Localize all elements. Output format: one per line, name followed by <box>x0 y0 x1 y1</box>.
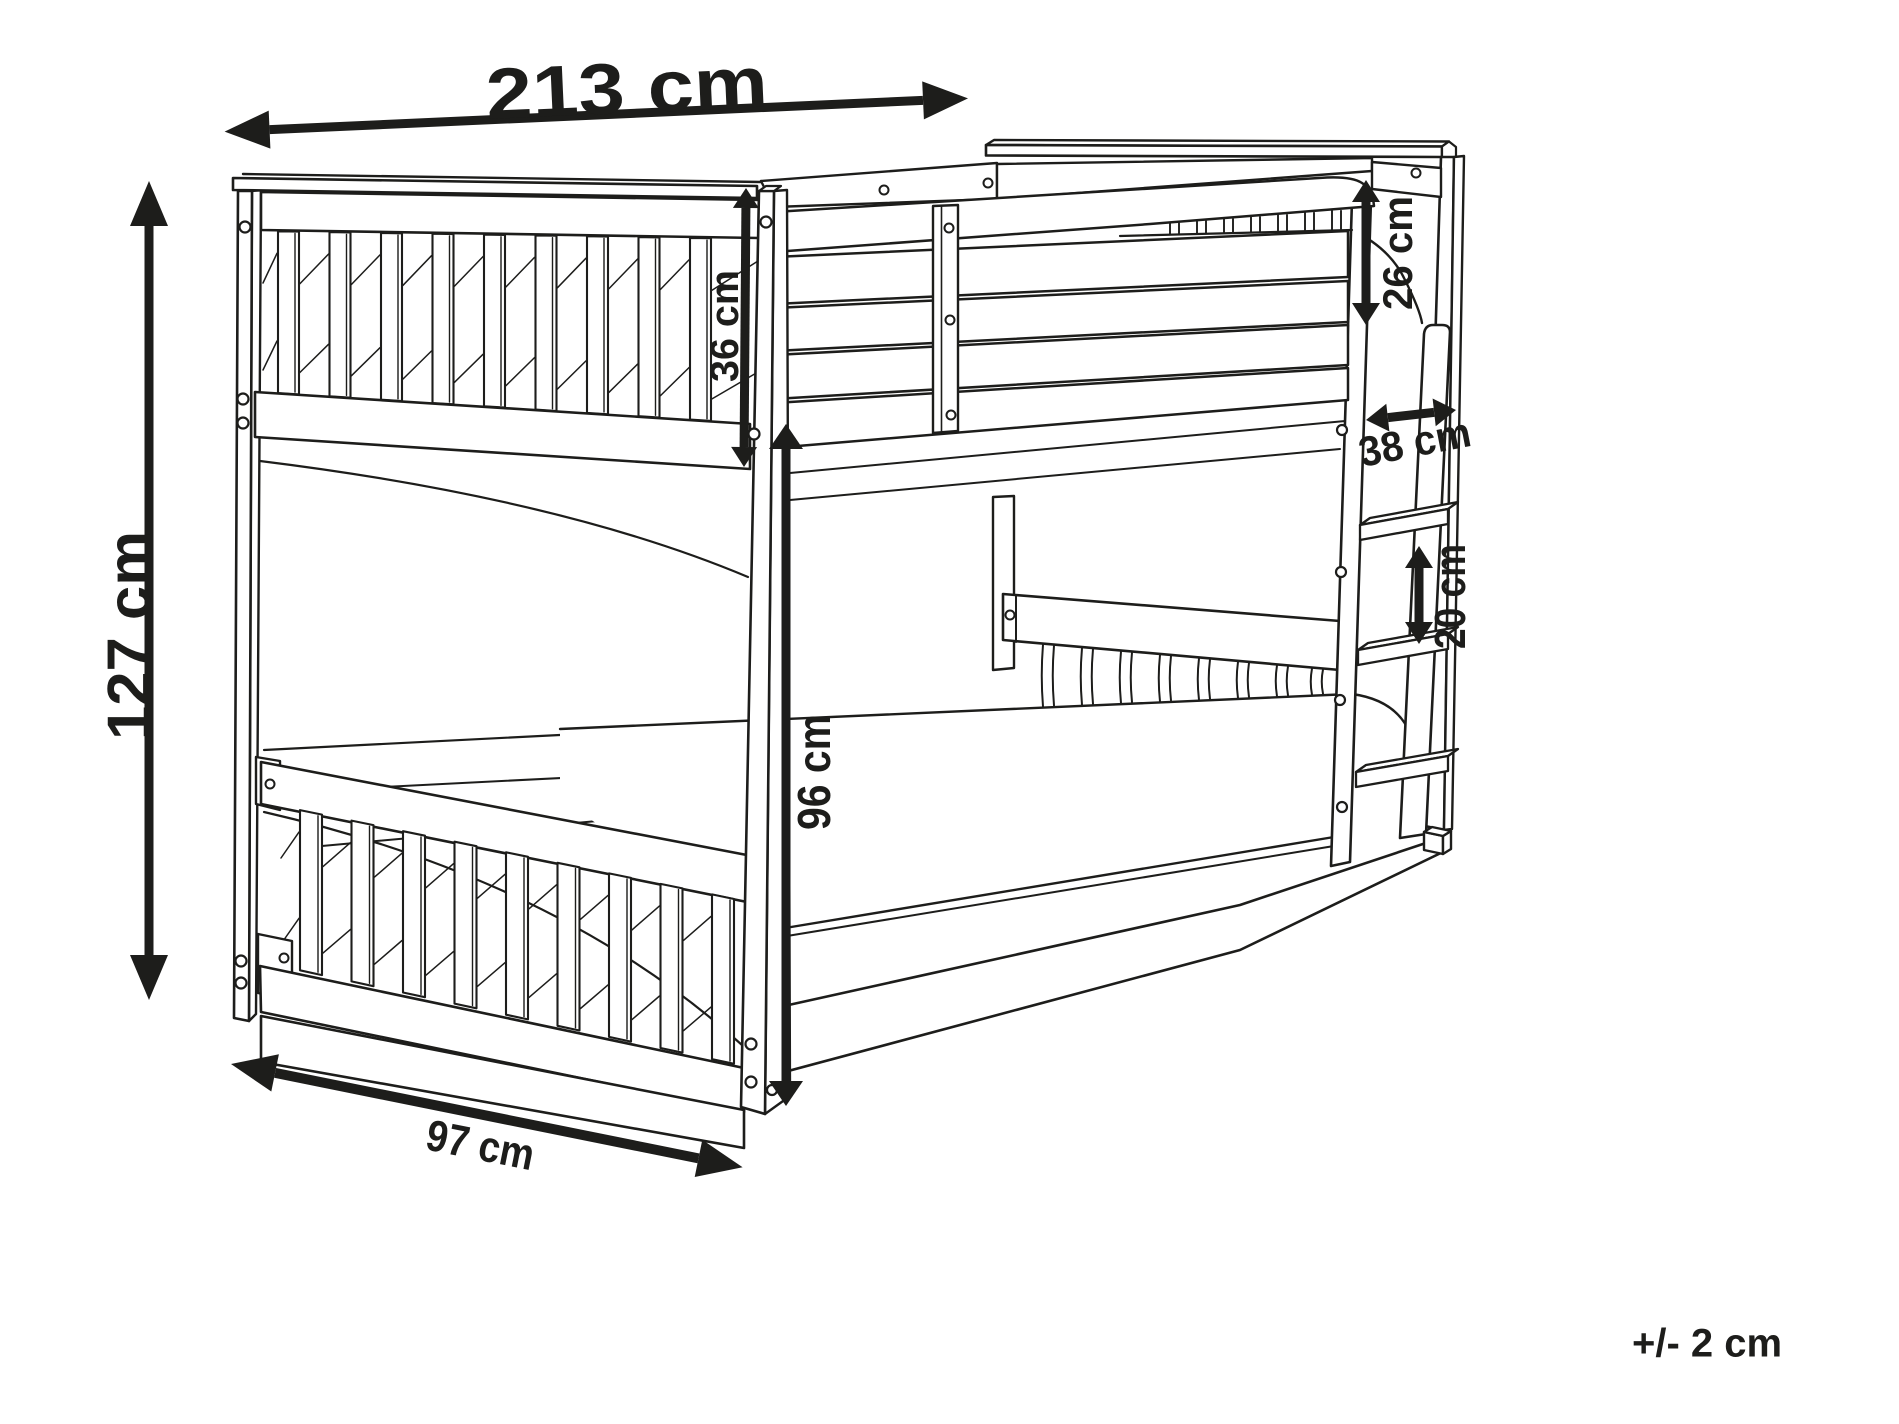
svg-text:20 cm: 20 cm <box>1426 544 1475 649</box>
svg-text:127 cm: 127 cm <box>95 531 163 740</box>
svg-text:26 cm: 26 cm <box>1374 196 1421 310</box>
svg-text:96 cm: 96 cm <box>788 714 840 830</box>
svg-text:36 cm: 36 cm <box>703 270 747 382</box>
svg-text:+/- 2 cm: +/- 2 cm <box>1632 1322 1782 1366</box>
svg-text:213 cm: 213 cm <box>484 42 769 135</box>
